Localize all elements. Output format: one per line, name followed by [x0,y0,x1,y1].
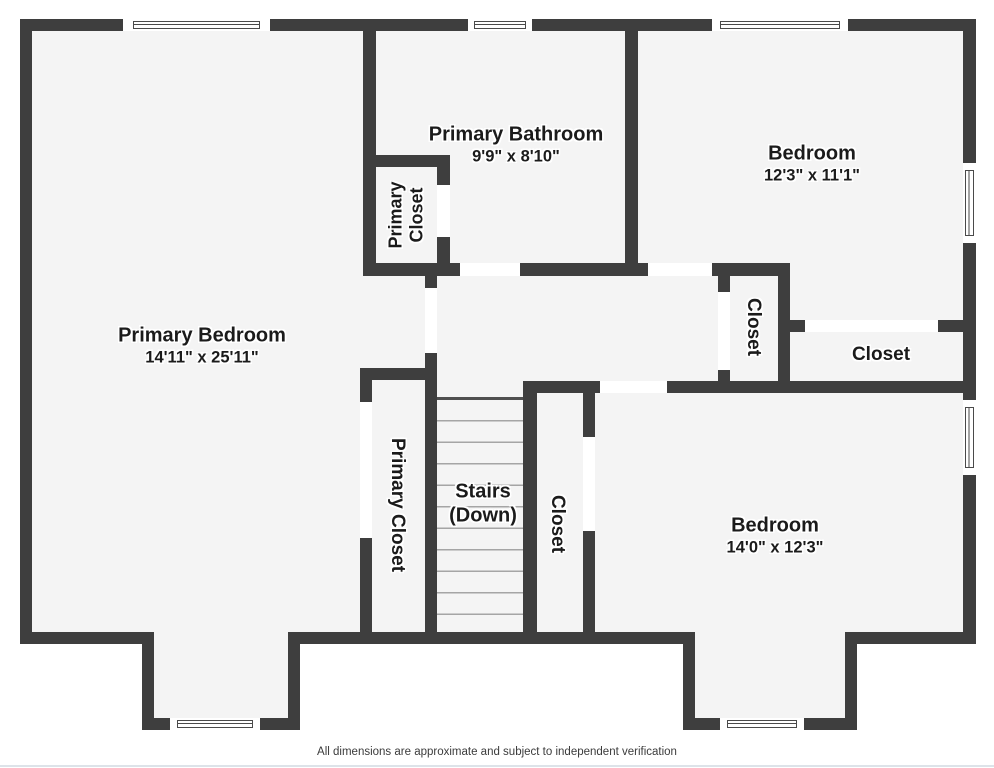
wall-hall-closet-east [778,263,790,393]
room-label-stairs: Stairs (Down) [449,480,517,527]
room-dims: 12'3" x 11'1" [764,166,860,185]
closet-name-line2: Closet [406,181,427,248]
window-frame [965,170,974,236]
wall-outer-bottom-c [845,632,976,644]
window-frame [720,21,840,29]
room-name: Primary Bedroom [118,324,286,348]
closet-name-line1: Primary [385,181,406,248]
room-dims: 14'0" x 12'3" [727,538,824,557]
room-name: Primary Bathroom [429,123,604,147]
window-frame [177,720,253,728]
room-label-closet-hallway: Closet [742,298,764,356]
wall-outer-bottom-a [20,632,154,644]
wall-outer-right [963,19,976,644]
room-label-primary-bathroom: Primary Bathroom 9'9" x 8'10" [429,123,604,166]
door-right-closet [805,320,938,332]
stairs-name: Stairs [449,480,517,504]
room-label-bedroom-bottom: Bedroom 14'0" x 12'3" [727,514,824,557]
stairs-direction: (Down) [449,504,517,528]
room-label-primary-closet-lower: Primary Closet [386,438,408,572]
door-bedroom-top [648,263,712,276]
door-primary-bedroom [425,288,437,353]
room-dims: 9'9" x 8'10" [429,147,604,166]
wall-stairs-east [523,381,537,644]
room-label-bedroom-top: Bedroom 12'3" x 11'1" [764,142,860,185]
door-bathroom [460,263,520,276]
window-frame [474,21,526,29]
window-frame [965,407,974,468]
floor-plan: Primary Bedroom 14'11" x 25'11" Primary … [0,0,994,768]
wall-outer-left [20,19,32,644]
room-name: Bedroom [727,514,824,538]
door-bedroom-closet [583,437,595,531]
door-primary-closet-lower [360,402,372,538]
floor-bumpout-right [683,632,857,730]
wall-bumpout-right-west [683,632,695,730]
disclaimer-text: All dimensions are approximate and subje… [317,746,677,758]
door-hall-closet [718,292,730,370]
room-name: Bedroom [764,142,860,166]
wall-bathroom-bedroom-divider [625,19,638,276]
door-bedroom-bottom [600,381,667,393]
room-label-primary-bedroom: Primary Bedroom 14'11" x 25'11" [118,324,286,367]
window-frame [133,21,260,29]
room-label-closet-bedroom: Closet [546,495,568,553]
wall-bumpout-left-east [288,632,300,730]
wall-bumpout-left-west [142,632,154,730]
room-dims: 14'11" x 25'11" [118,348,286,367]
bottom-rule [0,765,994,767]
wall-primary-bedroom-divider [363,19,376,276]
wall-outer-bottom-b [288,632,695,644]
door-primary-closet-top [437,185,450,237]
window-frame [727,720,797,728]
floor-bumpout-left [142,632,300,730]
room-label-primary-closet-top: Primary Closet [385,181,426,248]
wall-bumpout-right-east [845,632,857,730]
room-label-closet-right: Closet [852,344,910,366]
